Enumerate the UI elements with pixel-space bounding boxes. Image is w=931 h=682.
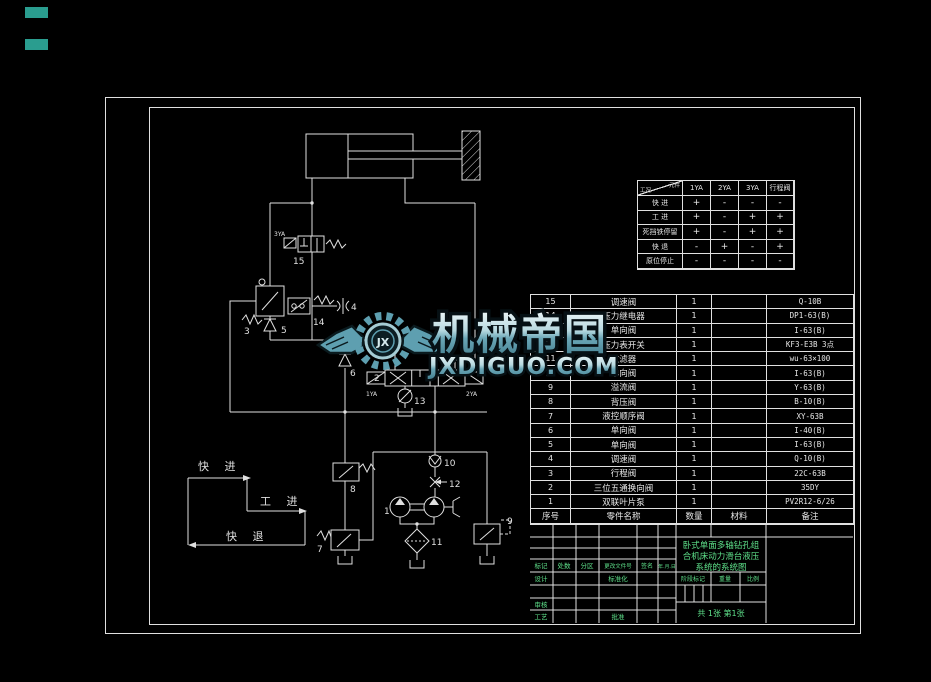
watermark-brand-text: 机械帝国 bbox=[432, 310, 608, 359]
cad-canvas: 1 2 3 4 5 6 7 8 9 10 11 12 13 14 15 3YA … bbox=[0, 0, 931, 682]
watermark-domain-text: JXDIGUO.COM bbox=[427, 354, 619, 380]
watermark: JX 机械帝国 JXDIGUO.COM bbox=[0, 0, 931, 682]
watermark-jx-monogram: JX bbox=[376, 336, 390, 349]
